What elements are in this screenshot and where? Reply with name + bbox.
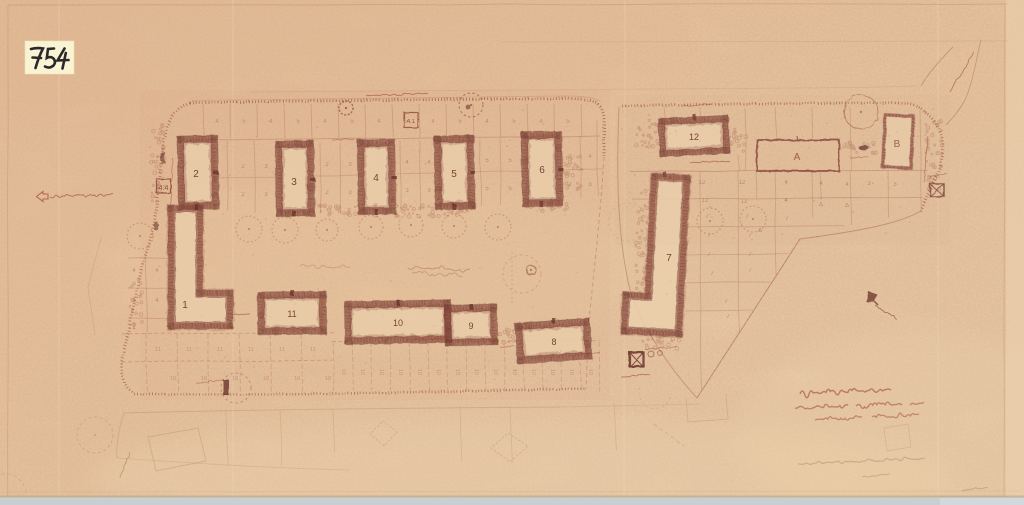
svg-text:7: 7 [666,253,672,264]
